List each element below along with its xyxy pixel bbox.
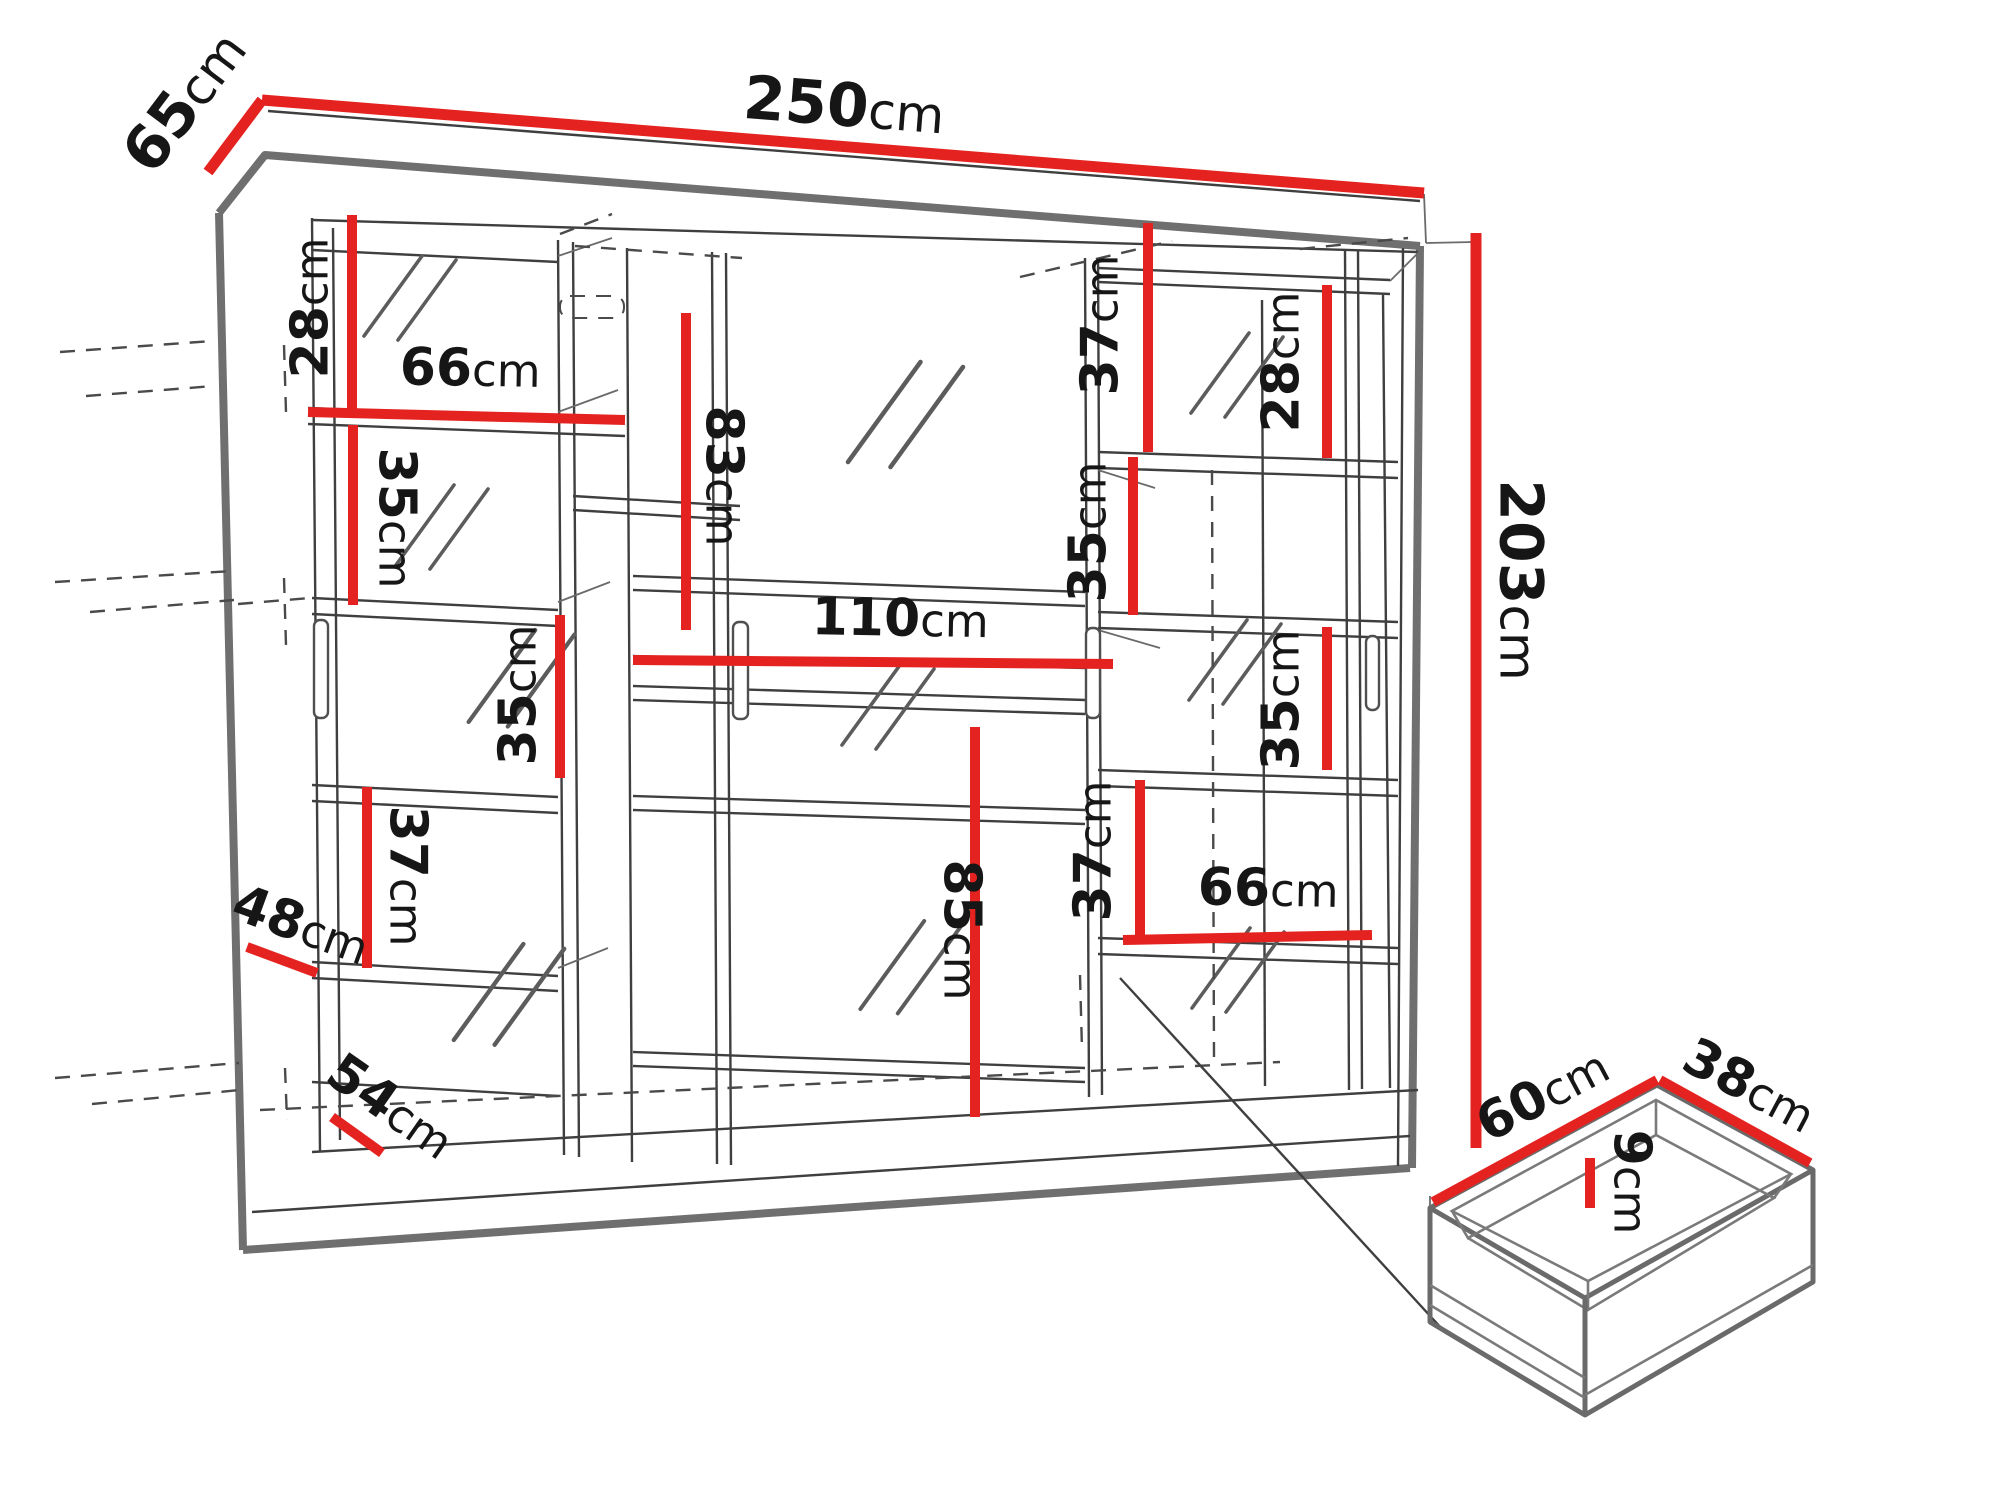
dim-label-left-28: 28cm <box>281 238 341 379</box>
dim-label-83: 83cm <box>693 406 753 547</box>
dim-label-right-35a: 35cm <box>1059 462 1119 603</box>
dim-label-right-35b: 35cm <box>1252 630 1312 771</box>
diagram-page: 250cm 65cm 203cm 28cm 66cm 35cm 35cm 37c… <box>0 0 2000 1500</box>
dim-label-65: 65cm <box>108 16 260 186</box>
dim-label-drawer-9: 9cm <box>1601 1130 1661 1235</box>
mirror-mark <box>454 944 564 1045</box>
dim-line-110 <box>633 660 1113 664</box>
leader-line <box>1120 978 1443 1330</box>
dim-label-right-66: 66cm <box>1197 857 1339 919</box>
door-handle <box>314 620 328 718</box>
dim-label-left-66: 66cm <box>399 337 541 399</box>
dim-label-right-37-top: 37cm <box>1071 255 1131 396</box>
dim-label-right-28: 28cm <box>1252 292 1312 433</box>
door-handle <box>1366 636 1379 710</box>
dim-label-203: 203cm <box>1485 479 1555 680</box>
dim-label-85: 85cm <box>931 860 991 1001</box>
dim-label-right-37-low: 37cm <box>1064 781 1124 922</box>
middle-door <box>573 496 1085 1082</box>
mirror-mark <box>848 362 963 467</box>
wardrobe-dimension-diagram: 250cm 65cm 203cm 28cm 66cm 35cm 35cm 37c… <box>0 0 2000 1500</box>
dim-label-left-35b: 35cm <box>489 625 549 766</box>
door-handle <box>733 622 748 719</box>
dim-label-left-35a: 35cm <box>366 448 426 589</box>
dim-label-left-37: 37cm <box>377 806 437 947</box>
hidden-lines <box>55 214 1408 1120</box>
dimension-labels: 250cm 65cm 203cm 28cm 66cm 35cm 35cm 37c… <box>108 16 1825 1234</box>
dim-label-110: 110cm <box>811 587 989 650</box>
dim-line-left-66 <box>308 412 625 420</box>
door-handle <box>1086 628 1100 718</box>
mirror-mark <box>364 256 456 340</box>
dim-line-right-66 <box>1123 935 1372 940</box>
